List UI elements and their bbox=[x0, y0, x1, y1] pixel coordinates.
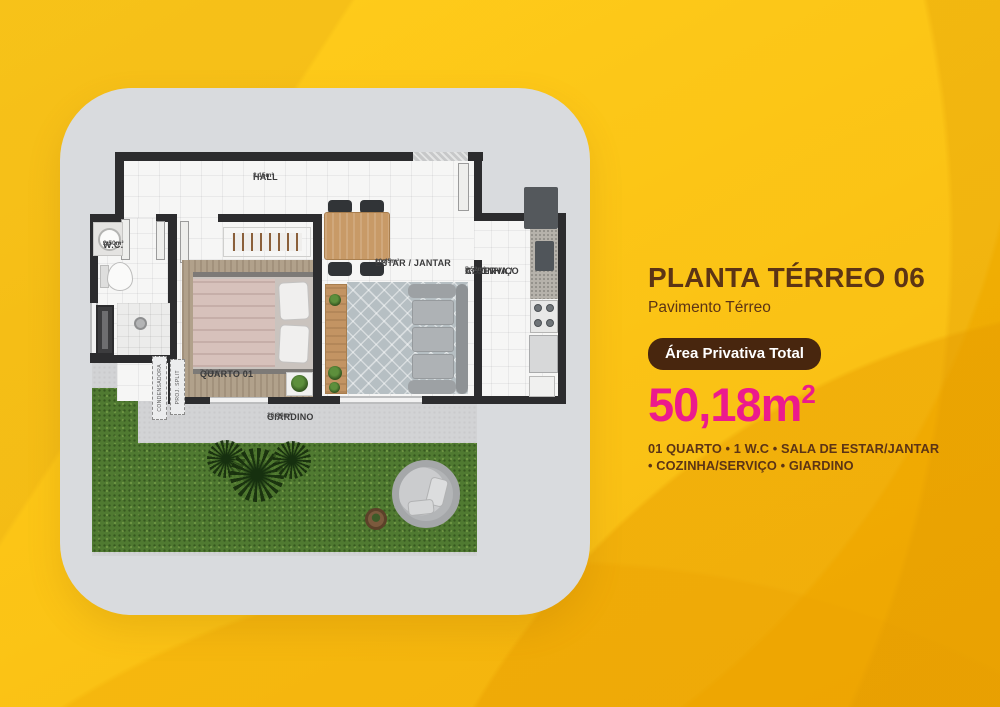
proj-split-box: PROJ. SPLIT bbox=[170, 359, 185, 415]
wall bbox=[558, 213, 566, 404]
coat-rack bbox=[223, 227, 311, 257]
dining-chair bbox=[328, 262, 352, 276]
room-area: 5,52m² bbox=[465, 266, 486, 273]
room-area: 16,84m² bbox=[267, 412, 291, 419]
area-badge: Área Privativa Total bbox=[648, 338, 821, 370]
console-plant bbox=[329, 382, 340, 393]
pillow bbox=[278, 324, 310, 364]
bedroom-window bbox=[210, 396, 268, 404]
sofa-cushion bbox=[412, 327, 454, 352]
wall bbox=[474, 160, 482, 217]
features-line-1: 01 QUARTO • 1 W.C • SALA DE ESTAR/JANTAR bbox=[648, 441, 948, 458]
page-subtitle: Pavimento Térreo bbox=[648, 299, 948, 317]
area-value: 50,18m2 bbox=[648, 377, 948, 432]
shower-niche bbox=[96, 305, 114, 355]
page: { "panel": { "title": "PLANTA TÉRREO 06"… bbox=[0, 0, 1000, 707]
chair-cushion bbox=[407, 499, 434, 517]
burner bbox=[534, 319, 542, 327]
room-area: 2,50m² bbox=[103, 240, 124, 247]
garden-plant bbox=[273, 441, 311, 479]
sofa-armrest bbox=[408, 380, 456, 394]
toilet bbox=[107, 262, 133, 291]
wc-door-leaf-2 bbox=[156, 221, 165, 260]
washing-machine bbox=[529, 335, 558, 373]
bed bbox=[193, 272, 313, 374]
wall bbox=[115, 152, 124, 222]
features-line-2: • COZINHA/SERVIÇO • GIARDINO bbox=[648, 458, 948, 475]
console-plant bbox=[328, 366, 342, 380]
sofa-armrest bbox=[408, 284, 456, 298]
wall bbox=[474, 260, 482, 404]
entrance-opening bbox=[413, 152, 468, 161]
condensadora-box: CONDENSADORA bbox=[152, 356, 167, 420]
console-plant bbox=[329, 294, 341, 306]
living-window bbox=[340, 396, 422, 404]
info-panel: PLANTA TÉRREO 06 Pavimento Térreo Área P… bbox=[648, 262, 948, 475]
laundry-tank bbox=[529, 376, 555, 397]
dining-table bbox=[324, 212, 390, 260]
bedroom-door-leaf bbox=[180, 221, 189, 263]
garden-pot bbox=[365, 508, 387, 530]
room-area: 3,15m² bbox=[253, 172, 274, 179]
floorplan-card: CONDENSADORA PROJ. SPLIT HALL 3,15m² W.C… bbox=[60, 88, 590, 615]
proj-split-label: PROJ. SPLIT bbox=[175, 370, 181, 404]
room-area: 7,06m² bbox=[200, 369, 221, 376]
wall bbox=[90, 214, 123, 222]
fridge bbox=[524, 187, 558, 229]
sofa-back bbox=[456, 284, 468, 394]
entrance-door-leaf bbox=[458, 163, 469, 211]
pillow bbox=[278, 281, 310, 321]
features-list: 01 QUARTO • 1 W.C • SALA DE ESTAR/JANTAR… bbox=[648, 441, 948, 475]
sofa-cushion bbox=[412, 300, 454, 325]
burner bbox=[534, 304, 542, 312]
wall bbox=[218, 214, 314, 222]
page-title: PLANTA TÉRREO 06 bbox=[648, 262, 948, 294]
room-area: 10,45m² bbox=[375, 258, 399, 265]
burner bbox=[546, 319, 554, 327]
burner bbox=[546, 304, 554, 312]
condensadora-label: CONDENSADORA bbox=[157, 364, 163, 412]
wall bbox=[313, 214, 322, 404]
area-exponent: 2 bbox=[801, 379, 815, 409]
shower-drain bbox=[134, 317, 147, 330]
potted-plant bbox=[291, 375, 308, 392]
bed-blanket bbox=[193, 279, 275, 367]
area-number: 50,18m bbox=[648, 378, 801, 431]
sofa-cushion bbox=[412, 354, 454, 379]
kitchen-sink bbox=[535, 241, 554, 271]
stove bbox=[530, 300, 558, 333]
